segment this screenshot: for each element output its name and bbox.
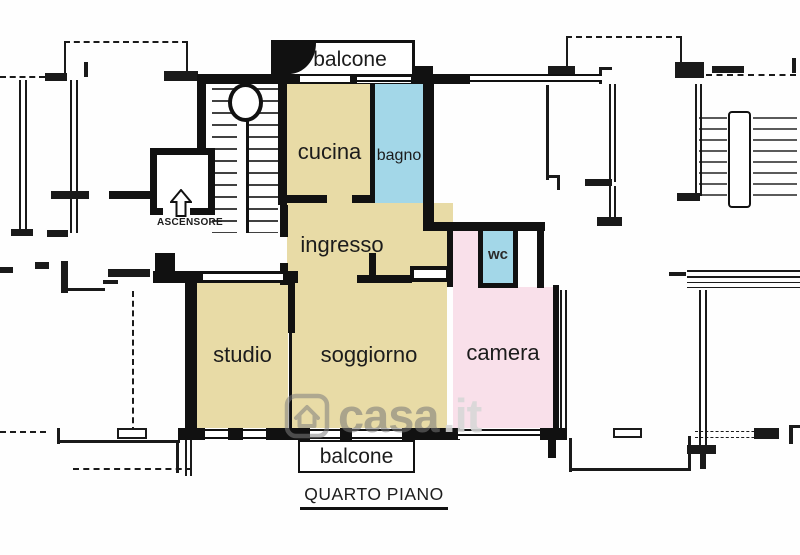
neighbor-outline: [11, 229, 33, 236]
watermark-tld: .it: [443, 392, 482, 439]
neighbor-outline: [73, 468, 192, 470]
neighbor-outline: [669, 272, 686, 276]
ingresso-label: ingresso: [282, 231, 402, 259]
neighbor-outline: [35, 262, 49, 269]
soggiorno-label: soggiorno: [291, 341, 447, 369]
wall-segment: [540, 428, 567, 440]
neighbor-outline: [688, 436, 691, 471]
neighbor-outline: [70, 80, 78, 194]
neighbor-outline: [599, 67, 612, 70]
wall-segment: [548, 440, 556, 458]
neighbor-outline: [677, 193, 700, 201]
wall-segment: [197, 74, 206, 154]
neighbor-outline: [687, 445, 716, 454]
neighbor-outline: [132, 291, 134, 433]
neighbor-outline: [64, 41, 188, 43]
house-icon: [284, 393, 330, 439]
neighbor-outline: [597, 217, 622, 226]
wall-segment: [352, 195, 370, 203]
neighbor-outline: [0, 431, 46, 433]
wall-segment: [357, 275, 412, 283]
neighbor-outline: [57, 440, 180, 443]
caption-underline: [300, 507, 448, 510]
stairs-rail: [246, 112, 249, 233]
neighbor-outline: [84, 62, 88, 77]
neighbor-outline: [675, 62, 704, 78]
neighbor-stairs: [728, 111, 751, 208]
studio-label: studio: [197, 341, 288, 369]
neighbor-outline: [566, 36, 682, 38]
neighbor-outline: [687, 270, 800, 278]
camera-label: camera: [453, 339, 553, 367]
wall-segment: [537, 226, 544, 288]
neighbor-outline: [546, 85, 549, 180]
neighbor-outline: [700, 454, 706, 469]
neighbor-outline: [585, 179, 612, 186]
window-slot: [300, 76, 350, 82]
balcone-top-label: balcone: [285, 46, 415, 74]
neighbor-outline: [569, 468, 691, 471]
wall-segment: [278, 82, 287, 205]
room-camera: [453, 231, 478, 287]
stairwell-ellipse: [228, 83, 263, 122]
neighbor-outline: [61, 288, 105, 291]
wall-segment: [155, 253, 175, 273]
neighbor-window-line: [470, 74, 602, 82]
neighbor-outline: [45, 73, 67, 81]
neighbor-outline: [51, 191, 89, 199]
neighbor-outline: [560, 290, 567, 428]
neighbor-outline: [108, 269, 150, 277]
watermark: casa .it: [284, 392, 481, 439]
wall-segment: [423, 78, 434, 229]
elevator-up-arrow-icon: [170, 189, 192, 217]
neighbor-outline: [789, 425, 800, 428]
wall-segment: [185, 277, 197, 433]
neighbor-outline: [609, 84, 616, 182]
neighbor-outline: [566, 36, 568, 67]
wall-segment: [553, 285, 559, 428]
neighbor-stairs-ticks: [699, 117, 727, 205]
neighbor-outline: [557, 175, 560, 190]
wall-segment: [228, 428, 243, 440]
window: [243, 429, 266, 439]
neighbor-outline: [699, 290, 707, 448]
window: [205, 429, 228, 439]
neighbor-outline: [103, 280, 118, 284]
neighbor-outline: [706, 74, 796, 76]
cucina-label: cucina: [287, 138, 372, 166]
neighbor-outline: [754, 428, 779, 439]
wall-segment: [109, 191, 150, 199]
wc-label: wc: [478, 245, 518, 263]
neighbor-outline: [0, 267, 13, 273]
neighbor-stairs-ticks: [753, 117, 797, 205]
wall-segment: [287, 195, 327, 203]
wall-segment: [288, 283, 295, 333]
neighbor-outline: [0, 76, 45, 78]
wall-segment: [178, 428, 205, 440]
floor-caption: QUARTO PIANO: [300, 483, 448, 505]
neighbor-outline: [19, 80, 27, 232]
neighbor-outline: [613, 428, 642, 438]
watermark-brand: casa: [338, 392, 439, 439]
bagno-label: bagno: [375, 146, 423, 166]
balcone-bottom-label: balcone: [298, 443, 415, 471]
neighbor-outline: [687, 282, 800, 288]
neighbor-outline: [712, 66, 744, 73]
neighbor-outline: [47, 230, 68, 237]
window-hatched: [357, 75, 411, 83]
neighbor-outline: [164, 71, 198, 81]
neighbor-outline: [569, 438, 572, 472]
floor-plan-image: balcone cucina bagno ingresso ASCENSORE …: [0, 0, 800, 555]
neighbor-outline: [792, 58, 796, 73]
door-slot: [414, 270, 446, 278]
window-slot: [203, 274, 283, 280]
neighbor-outline: [117, 428, 147, 439]
neighbor-outline: [70, 199, 78, 233]
ascensore-label: ASCENSORE: [148, 215, 232, 229]
